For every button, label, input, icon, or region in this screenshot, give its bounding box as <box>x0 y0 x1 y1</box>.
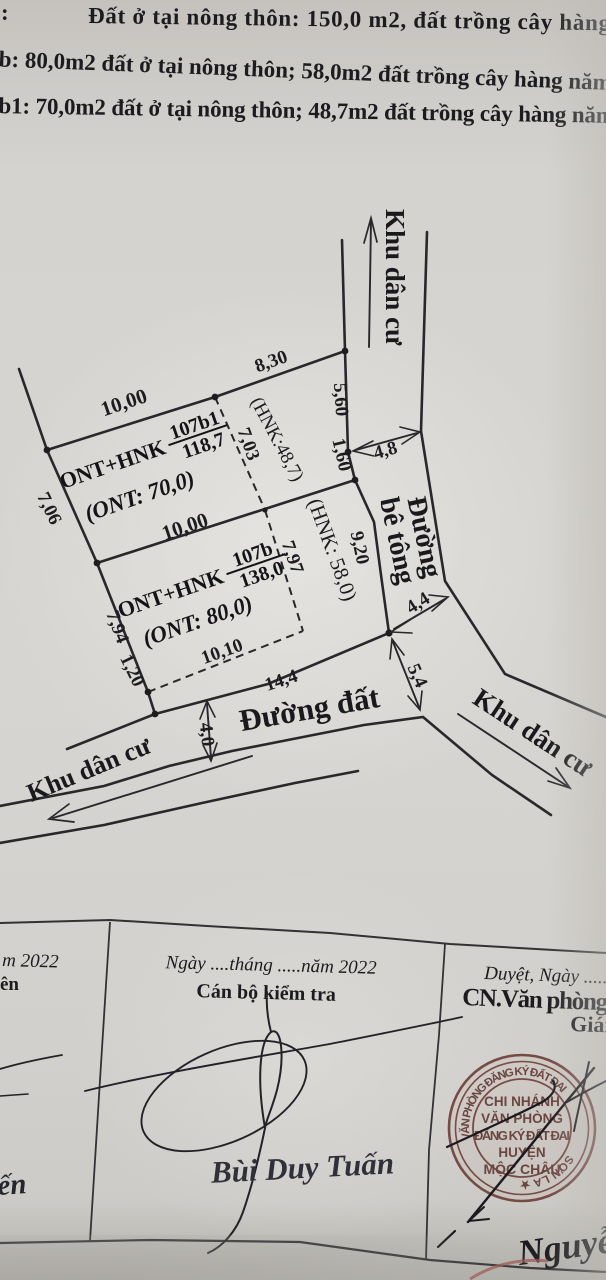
svg-text:Đất ở tại nông thôn: 150,0 m2,: Đất ở tại nông thôn: 150,0 m2, đất trồng… <box>88 3 606 35</box>
svg-text:Nguyễn: Nguyễn <box>514 1217 606 1273</box>
svg-text:ên: ên <box>0 974 19 995</box>
svg-text:Khu dân cư: Khu dân cư <box>380 209 410 346</box>
svg-text:4,0: 4,0 <box>195 722 218 748</box>
svg-text:7,03: 7,03 <box>233 425 264 463</box>
svg-text:10,10: 10,10 <box>198 635 245 669</box>
svg-text:Ngày ....tháng .....năm 2022: Ngày ....tháng .....năm 2022 <box>164 952 377 979</box>
svg-text:HUYỆN: HUYỆN <box>498 1145 545 1160</box>
svg-text:ến: ến <box>0 1168 27 1202</box>
svg-text:5,4: 5,4 <box>403 661 432 692</box>
svg-text:7,06: 7,06 <box>32 489 65 528</box>
svg-text:14,4: 14,4 <box>262 665 301 695</box>
svg-text:Giám đ: Giám đ <box>570 1011 606 1038</box>
svg-text:5,60: 5,60 <box>329 382 352 417</box>
svg-text:7b: 80,0m2 đất ở tại nông thôn: 7b: 80,0m2 đất ở tại nông thôn; 58,0m2 đ… <box>0 46 606 95</box>
svg-text:Khu dân cư: Khu dân cư <box>23 730 156 807</box>
svg-text:1,60: 1,60 <box>327 436 355 473</box>
svg-text:4,8: 4,8 <box>371 437 400 464</box>
svg-text:Bùi Duy Tuấn: Bùi Duy Tuấn <box>209 1145 395 1190</box>
svg-text:CHI NHÁNH: CHI NHÁNH <box>484 1094 560 1109</box>
svg-text:m 2022: m 2022 <box>2 950 60 972</box>
svg-text:ĐĂNG KÝ ĐẤT ĐAI: ĐĂNG KÝ ĐẤT ĐAI <box>474 1128 570 1143</box>
svg-text:MỘC CHÂU: MỘC CHÂU <box>484 1160 561 1177</box>
svg-text:10,00: 10,00 <box>159 507 211 545</box>
svg-text:4,4: 4,4 <box>402 588 434 619</box>
svg-text::: : <box>1 0 9 25</box>
svg-text:7b1: 70,0m2 đất ở tại nông thô: 7b1: 70,0m2 đất ở tại nông thôn; 48,7m2 … <box>0 93 606 128</box>
svg-text:CN.Văn phòng: CN.Văn phòng <box>462 984 606 1016</box>
svg-text:10,00: 10,00 <box>98 383 150 421</box>
